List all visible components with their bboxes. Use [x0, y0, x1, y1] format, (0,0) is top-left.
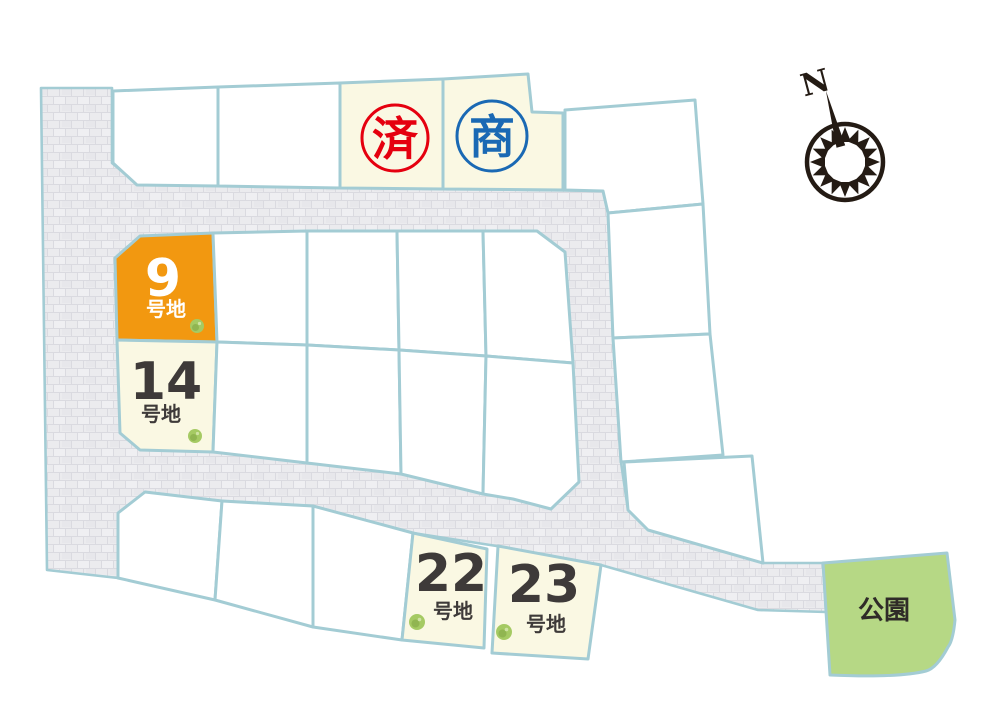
- lot-top-1: [113, 87, 218, 186]
- lot-23-suffix: 号地: [526, 612, 566, 636]
- lot-east-2: [613, 334, 723, 462]
- tree-icon: [188, 429, 202, 443]
- lot-mid-r1c2: [213, 231, 307, 345]
- lot-mid-r2c5: [483, 356, 579, 509]
- commercial-stamp-label: 商: [469, 110, 515, 164]
- tree-icon: [496, 624, 512, 640]
- subdivision-map-canvas: 済 商 公園 9 号地 14 号地 22 号地 23 号地: [0, 0, 983, 724]
- park-label: 公園: [858, 596, 910, 626]
- compass-icon: [807, 89, 883, 200]
- lot-top-2: [218, 83, 340, 188]
- lot-14-suffix: 号地: [141, 402, 181, 426]
- lot-mid-r2c3: [307, 345, 401, 474]
- lot-map: 済 商 公園 9 号地 14 号地 22 号地 23 号地: [0, 0, 983, 724]
- lot-mid-r1c3: [307, 231, 399, 350]
- lot-mid-r1c4: [397, 231, 486, 356]
- lot-22-number: 22: [415, 544, 487, 604]
- lot-mid-r1c5: [483, 231, 573, 363]
- sold-stamp-label: 済: [372, 112, 419, 166]
- lot-23-number: 23: [508, 555, 580, 615]
- compass-north-label: N: [797, 62, 834, 104]
- lot-9-suffix: 号地: [146, 297, 186, 321]
- tree-icon: [190, 319, 204, 333]
- lot-22-suffix: 号地: [433, 599, 473, 623]
- lot-bottom-2: [215, 501, 313, 627]
- tree-icon: [409, 614, 425, 630]
- lot-bottom-1: [118, 492, 222, 600]
- lot-mid-r2c4: [399, 350, 486, 494]
- lot-mid-r2c2: [213, 342, 307, 463]
- lot-9-label: 9 号地: [145, 249, 186, 321]
- lot-east-1: [608, 204, 710, 338]
